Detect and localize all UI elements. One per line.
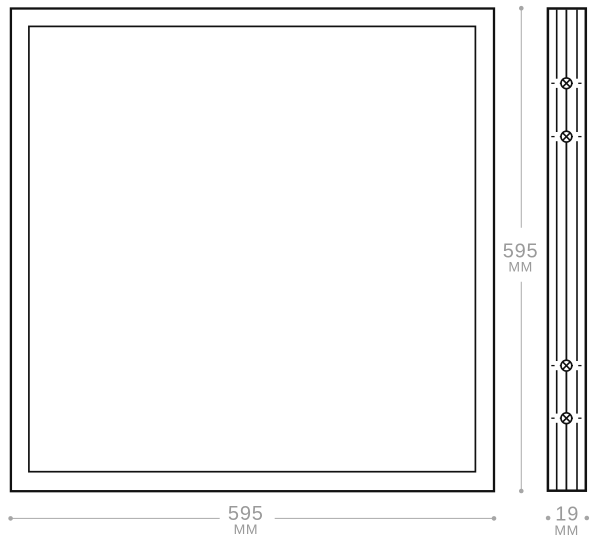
svg-text:MM: MM xyxy=(554,522,579,538)
svg-text:MM: MM xyxy=(508,259,533,275)
svg-text:MM: MM xyxy=(234,521,259,537)
